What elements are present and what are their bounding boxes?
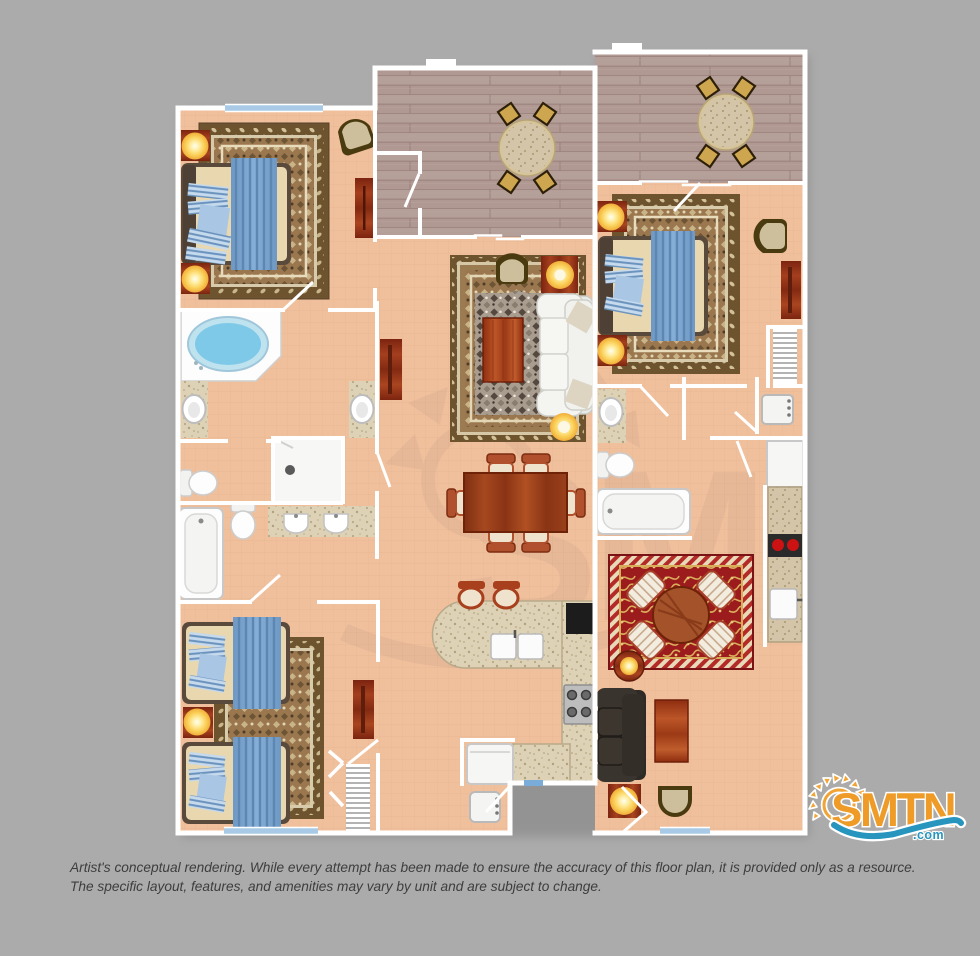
svg-text:.com: .com [913, 828, 944, 842]
svg-text:The specific layout, features,: The specific layout, features, and ameni… [70, 879, 602, 894]
svg-text:Artist's conceptual rendering.: Artist's conceptual rendering. While eve… [69, 860, 916, 875]
